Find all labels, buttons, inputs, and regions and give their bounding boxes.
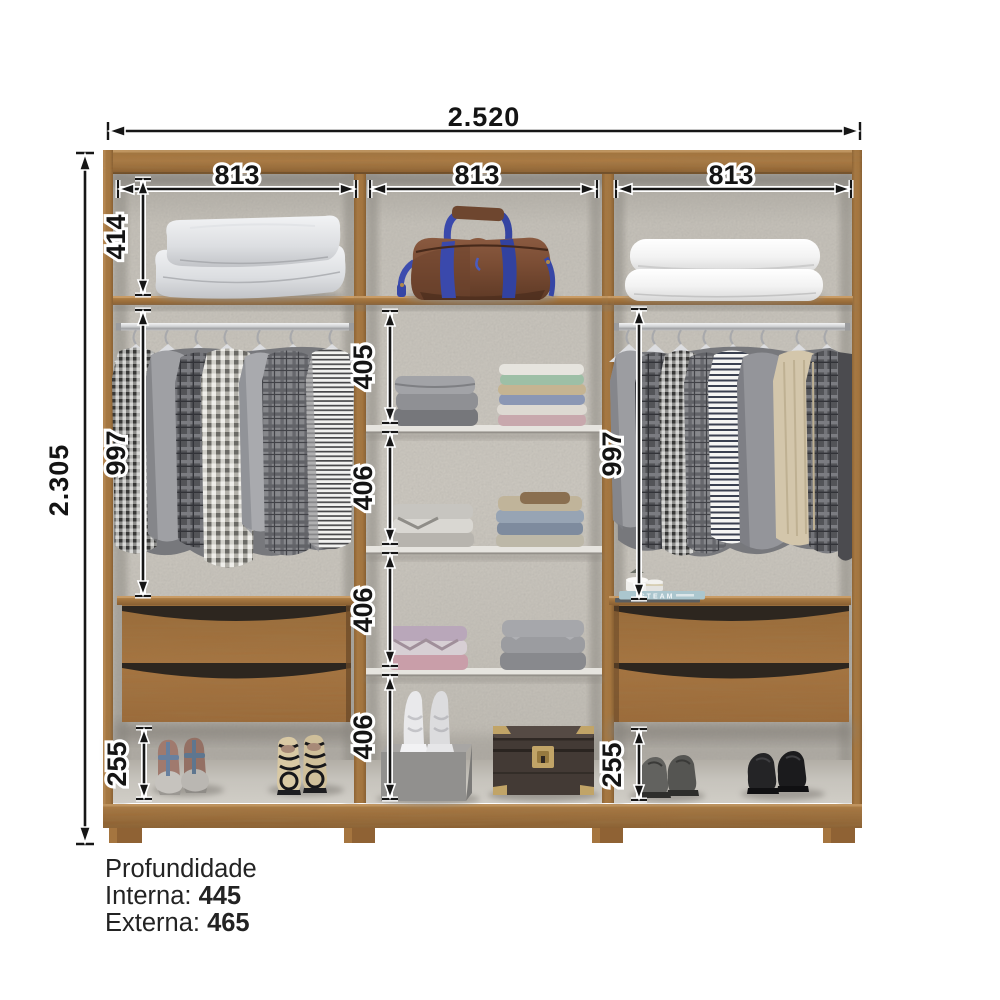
svg-text:406: 406	[348, 465, 378, 510]
svg-text:997: 997	[597, 431, 627, 476]
svg-text:255: 255	[597, 742, 627, 787]
svg-text:406: 406	[348, 714, 378, 759]
svg-text:Profundidade: Profundidade	[105, 855, 257, 883]
svg-text:813: 813	[708, 160, 753, 190]
svg-text:813: 813	[454, 160, 499, 190]
svg-text:Externa: 465: Externa: 465	[105, 909, 250, 937]
svg-text:2.305: 2.305	[44, 444, 74, 517]
svg-text:255: 255	[102, 741, 132, 786]
svg-text:406: 406	[348, 587, 378, 632]
svg-text:Interna: 445: Interna: 445	[105, 882, 241, 910]
svg-text:813: 813	[214, 160, 259, 190]
svg-text:414: 414	[101, 214, 131, 259]
svg-text:997: 997	[101, 430, 131, 475]
svg-text:2.520: 2.520	[448, 102, 521, 132]
svg-text:405: 405	[348, 344, 378, 389]
